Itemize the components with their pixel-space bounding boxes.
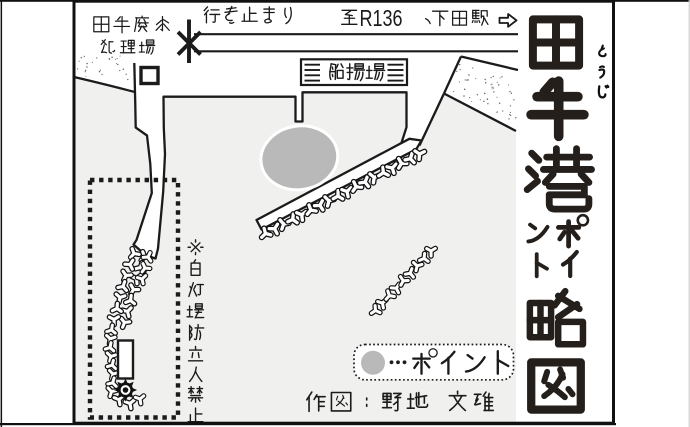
- svg-text:R136: R136: [360, 5, 403, 31]
